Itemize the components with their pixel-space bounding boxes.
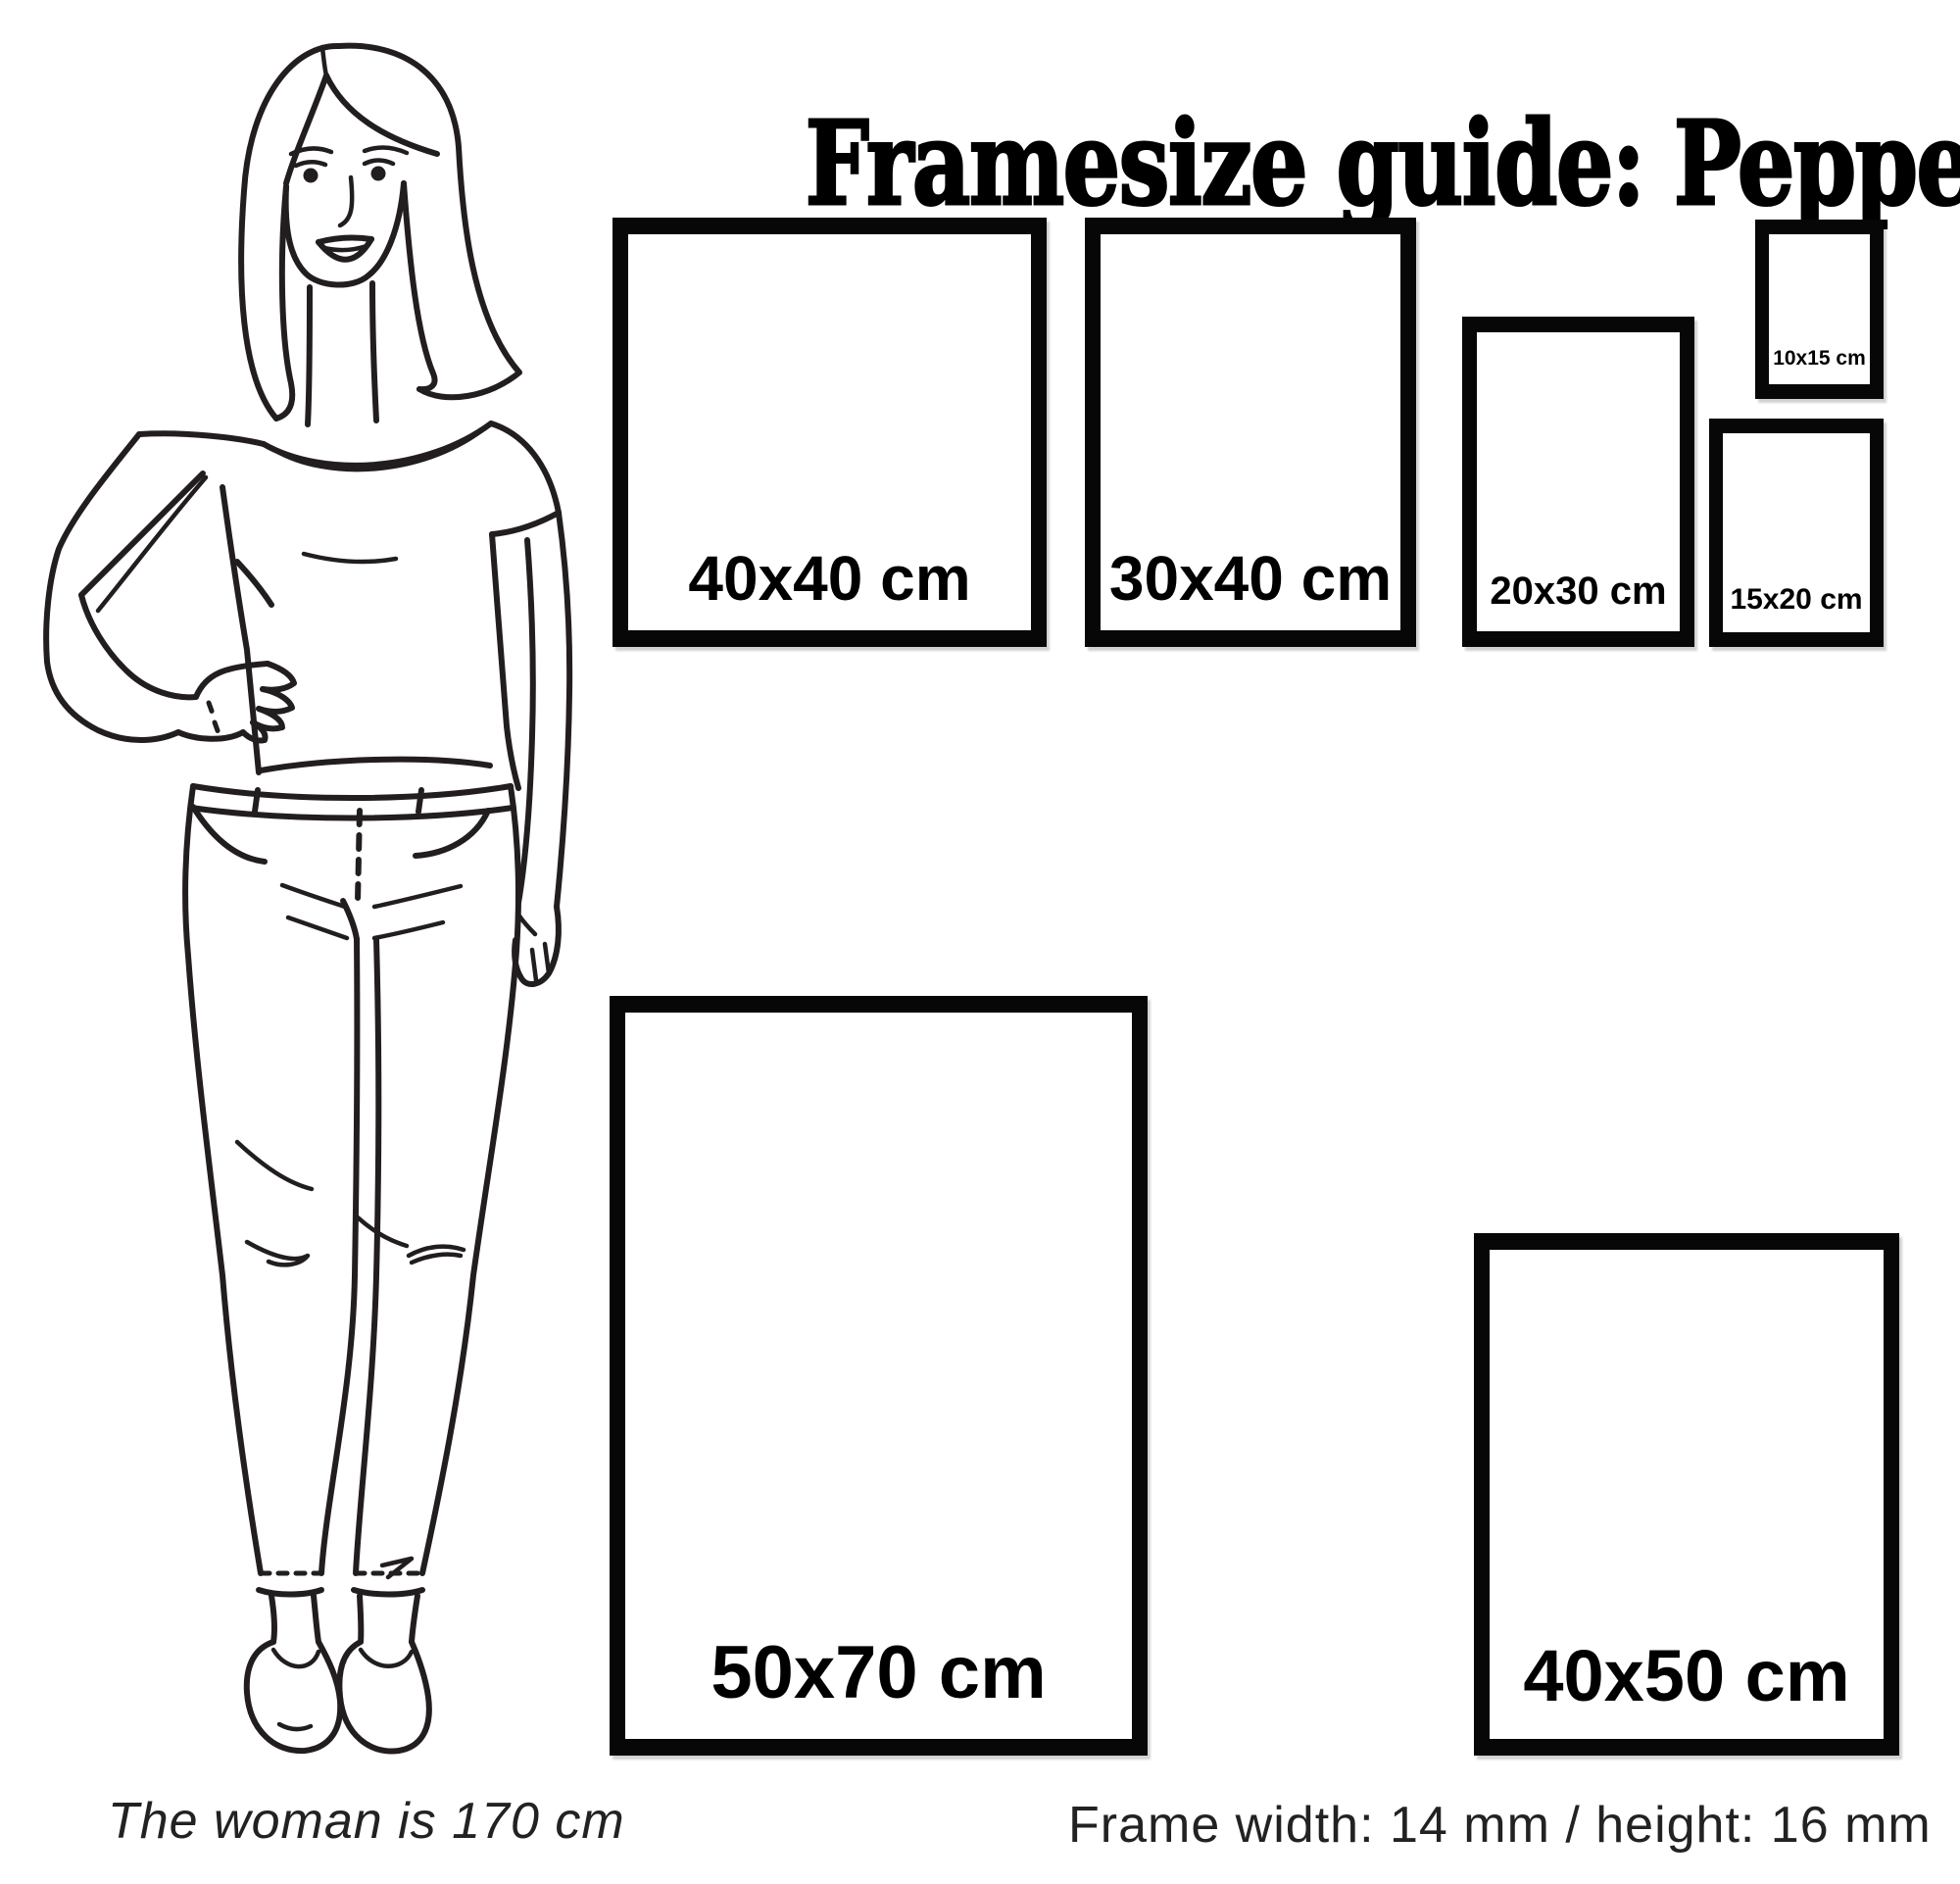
woman-face (286, 147, 407, 424)
frame-size-label: 50x70 cm (710, 1630, 1046, 1739)
frame-size-label: 15x20 cm (1730, 583, 1862, 632)
woman-illustration (29, 34, 578, 1764)
frame-size-label: 20x30 cm (1490, 570, 1666, 631)
woman-jeans (185, 786, 518, 1595)
woman-height-note: The woman is 170 cm (108, 1792, 598, 1851)
frame-50x70: 50x70 cm (610, 996, 1148, 1756)
frame-spec-note: Frame width: 14 mm / height: 16 mm (1068, 1796, 1901, 1855)
page-title-text: Framesize guide: Peppers (806, 95, 1960, 231)
frame-15x20: 15x20 cm (1709, 419, 1884, 647)
frame-40x50: 40x50 cm (1474, 1233, 1899, 1756)
woman-hair (241, 46, 519, 419)
frame-40x40: 40x40 cm (612, 218, 1047, 647)
frame-size-label: 10x15 cm (1773, 347, 1866, 384)
woman-top (81, 423, 559, 788)
woman-arms (46, 434, 569, 984)
page-title: Framesize guide: Peppers (627, 95, 1891, 231)
frame-20x30: 20x30 cm (1462, 317, 1694, 647)
frame-size-label: 30x40 cm (1109, 542, 1392, 630)
woman-line-drawing (29, 34, 578, 1764)
frame-size-label: 40x40 cm (688, 542, 970, 630)
frame-30x40: 30x40 cm (1085, 218, 1416, 647)
woman-shoes (247, 1596, 429, 1752)
frame-10x15: 10x15 cm (1755, 220, 1884, 399)
frame-size-label: 40x50 cm (1523, 1634, 1849, 1739)
